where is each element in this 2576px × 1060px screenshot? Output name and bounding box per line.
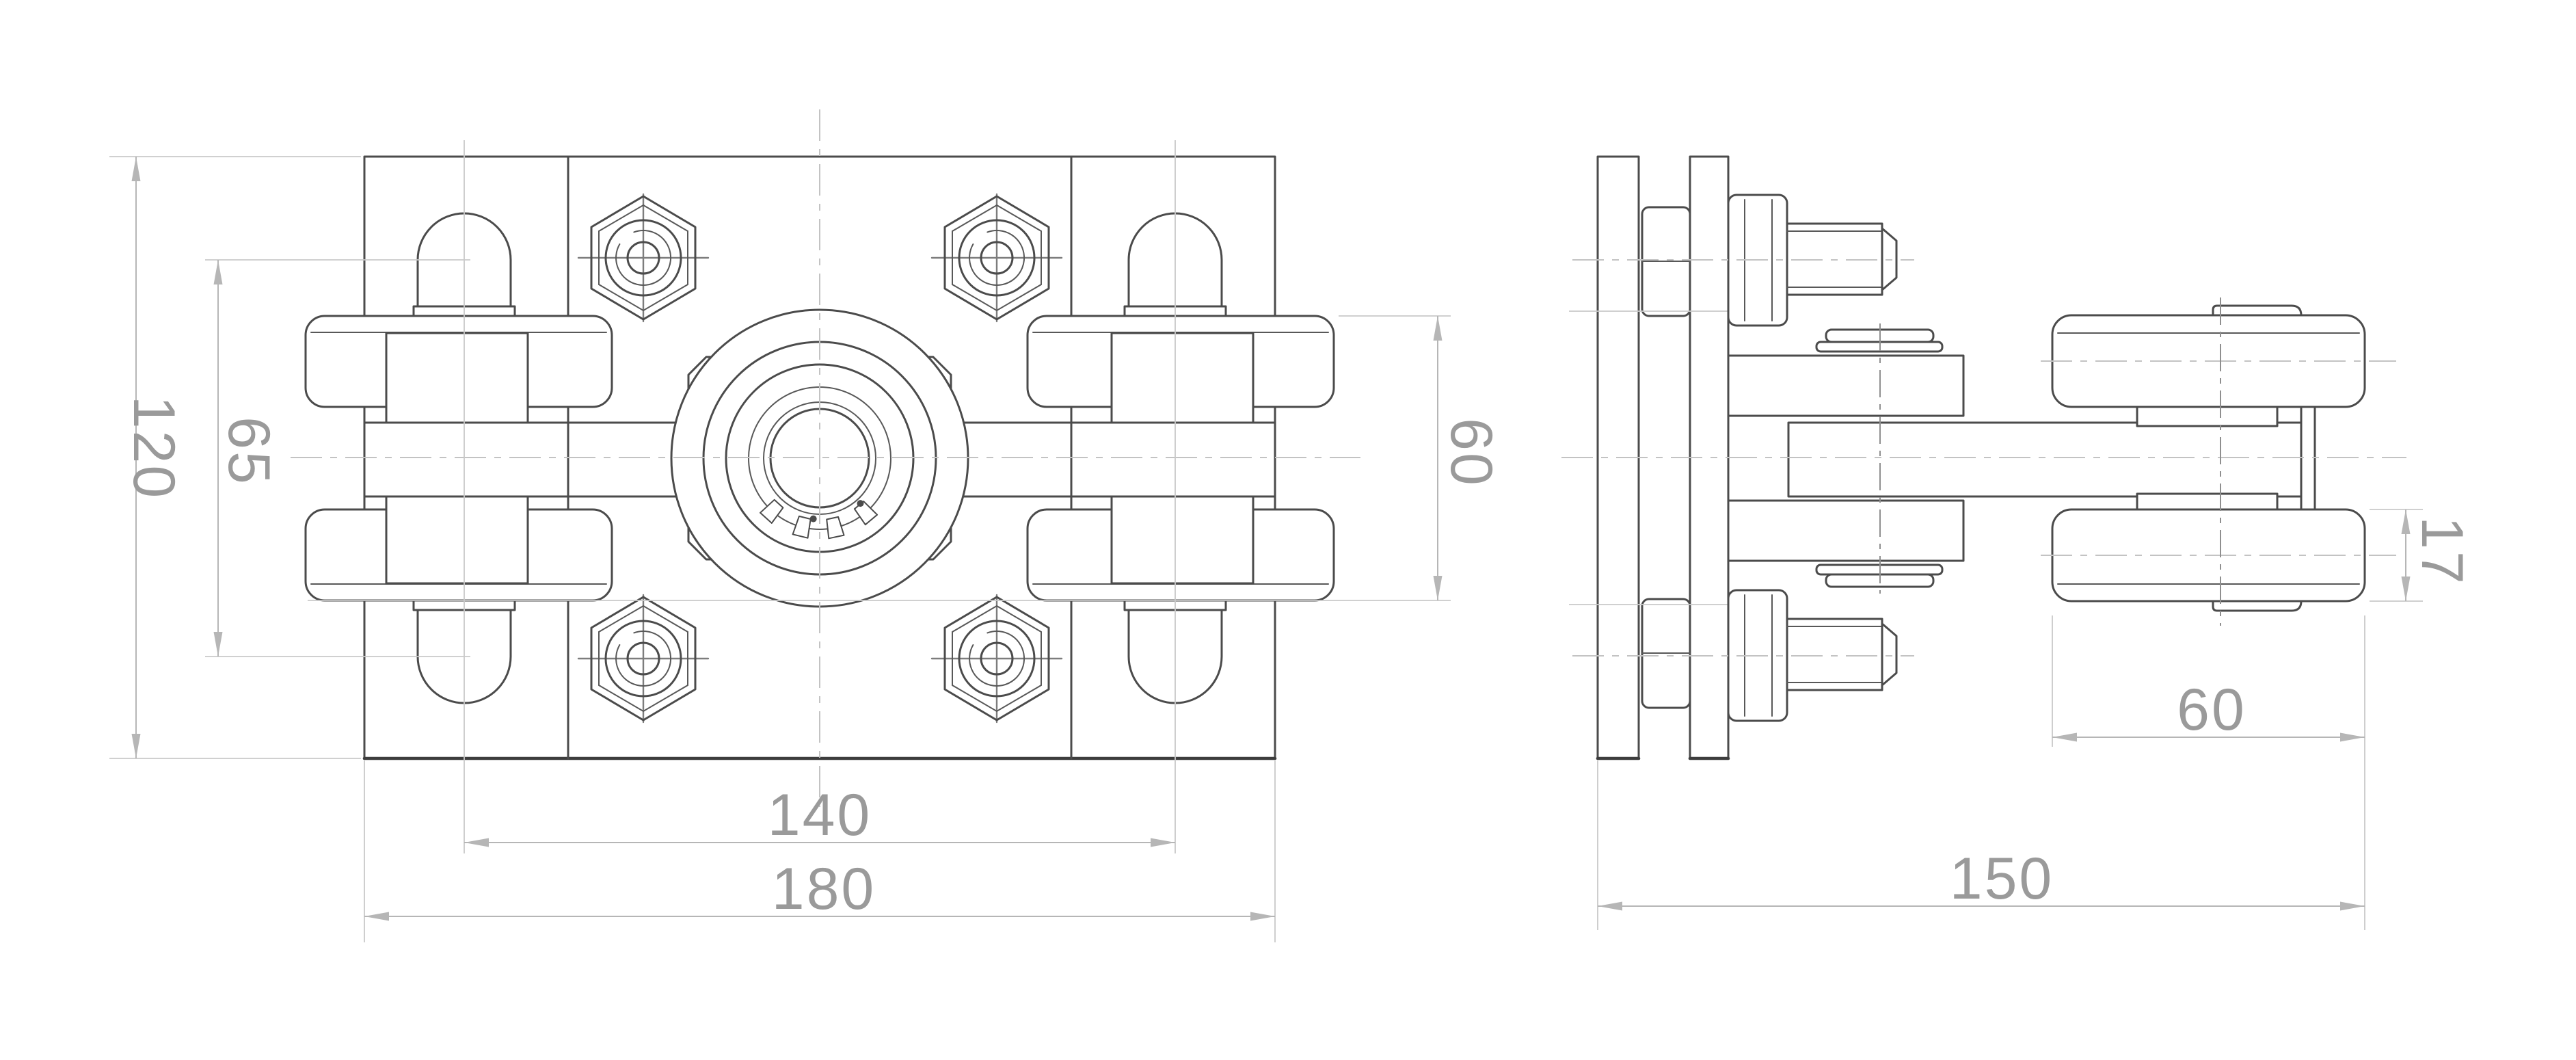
- roller-hub: [1112, 496, 1253, 583]
- bracket-arm: [1728, 356, 1963, 416]
- roller-side: [2041, 509, 2396, 611]
- roller-hub-block: [2137, 407, 2277, 426]
- ring-drill-dot: [810, 516, 817, 522]
- roller-hub: [1112, 333, 1253, 423]
- front-view: 120 65 60 140: [109, 109, 1504, 942]
- hex-bolt: [932, 194, 1062, 321]
- dim-label-120: 120: [121, 396, 187, 501]
- roller-hub: [386, 496, 528, 583]
- hex-bolt: [932, 595, 1062, 722]
- dim-label-17: 17: [2409, 516, 2475, 586]
- roller-hub-tab: [2213, 601, 2301, 611]
- side-view: 60 17 150: [1561, 157, 2475, 930]
- roller-side: [2041, 306, 2396, 407]
- ring-drill-dot: [857, 500, 864, 507]
- bracket-arm: [1728, 501, 1963, 561]
- dim-label-140: 140: [768, 782, 872, 848]
- dimension-overall-depth: 150: [1598, 747, 2365, 930]
- adjuster-bolt: [1572, 590, 1914, 721]
- dim-label-60: 60: [1438, 418, 1504, 488]
- dim-label-65: 65: [216, 416, 282, 486]
- roller-hub-tab: [2213, 306, 2301, 315]
- dim-label-60-side: 60: [2177, 677, 2246, 743]
- adjuster-bolt: [1572, 195, 1914, 326]
- axle-bar: [1788, 423, 2301, 496]
- bolt-shank: [1787, 619, 1882, 690]
- drawing-sheet: 120 65 60 140: [0, 0, 2576, 1060]
- roller-hub: [386, 333, 528, 423]
- dim-label-180: 180: [772, 856, 876, 922]
- hex-bolt: [578, 595, 708, 722]
- dimension-bolt-hole-spacing: 140: [464, 782, 1175, 848]
- spacer-nut: [1642, 599, 1690, 708]
- dimension-roller-width: 60: [2052, 615, 2365, 747]
- bolt-tip: [1882, 624, 1896, 685]
- hex-bolt: [578, 194, 708, 321]
- dim-label-150: 150: [1950, 846, 2054, 912]
- spacer-nut: [1642, 207, 1690, 316]
- technical-drawing: 120 65 60 140: [0, 0, 2576, 1060]
